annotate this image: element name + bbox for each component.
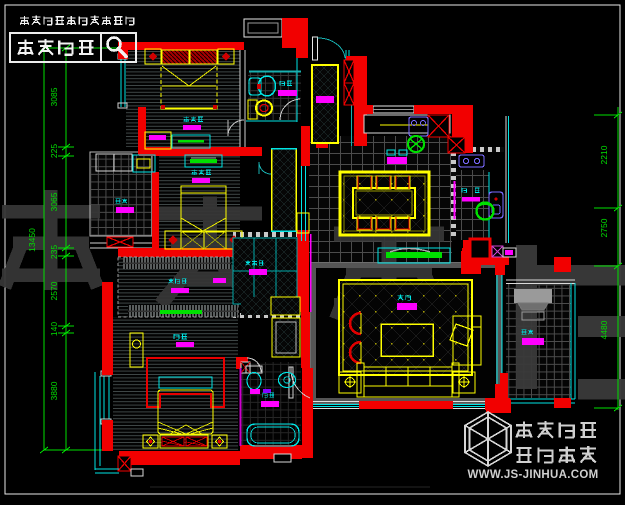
svg-text:2210: 2210 xyxy=(599,145,609,164)
svg-text:WWW.JS-JINHUA.COM: WWW.JS-JINHUA.COM xyxy=(468,469,599,481)
svg-text:3085: 3085 xyxy=(49,87,59,106)
svg-text:3065: 3065 xyxy=(49,192,59,211)
svg-text:2570: 2570 xyxy=(49,281,59,300)
svg-text:4480: 4480 xyxy=(599,320,609,339)
svg-text:225: 225 xyxy=(49,144,59,158)
svg-text:2750: 2750 xyxy=(599,218,609,237)
svg-text:3880: 3880 xyxy=(49,381,59,400)
svg-text:140: 140 xyxy=(49,322,59,336)
svg-text:235: 235 xyxy=(49,245,59,259)
svg-text:13450: 13450 xyxy=(27,228,37,252)
